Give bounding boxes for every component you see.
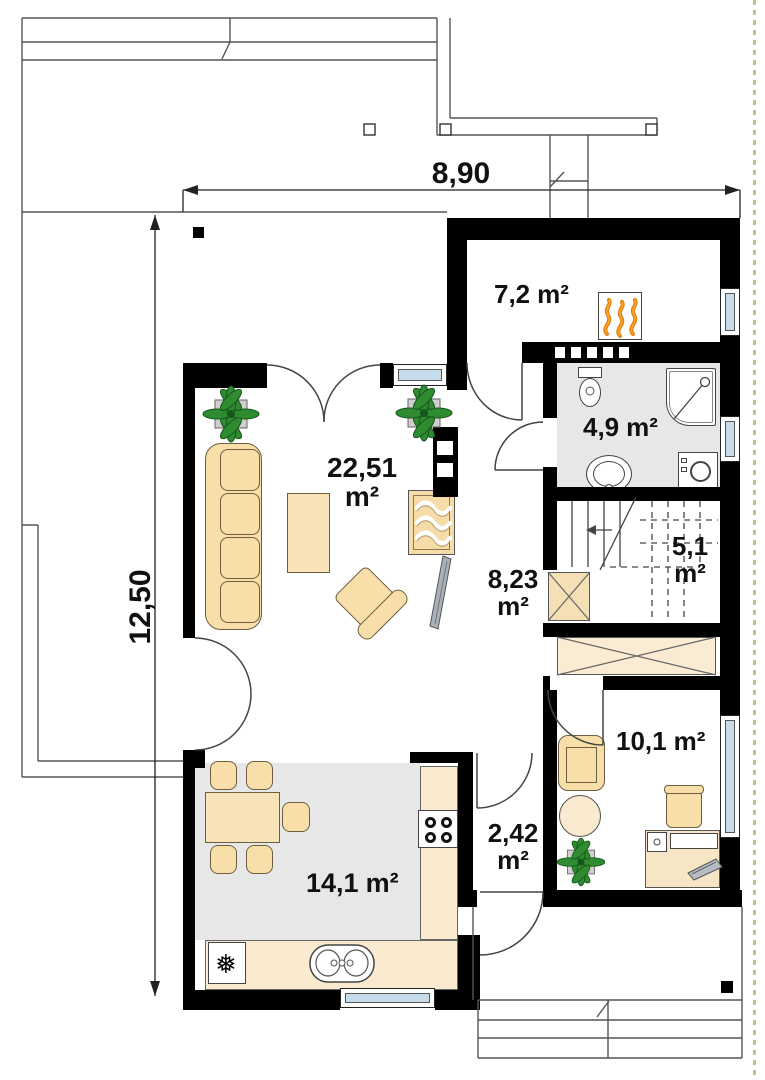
burner-icon — [425, 832, 436, 843]
wall-stairs-left — [543, 501, 557, 570]
wall-kitchen-top — [410, 752, 473, 763]
cooktop — [418, 810, 458, 848]
wall-kitchen-corner — [458, 935, 480, 1010]
room-label-vestibule: 2,42m² — [481, 820, 545, 874]
porch-steps — [473, 907, 742, 1058]
armchair — [323, 555, 411, 643]
chimney-vent — [437, 463, 453, 477]
post — [721, 981, 733, 993]
wall-living-top — [183, 363, 267, 388]
plant-icon — [203, 386, 259, 442]
chimney-block — [433, 427, 458, 497]
room-label-utility: 7,2m² — [494, 281, 569, 308]
wall-right — [720, 336, 740, 416]
wall-vestibule-right — [543, 690, 557, 890]
toilet-tank — [578, 367, 602, 378]
office-chair — [666, 790, 702, 828]
wall-kitchen-left — [183, 750, 195, 1010]
wall-living-top — [380, 363, 393, 388]
hatch-gap — [571, 347, 581, 358]
hatch-gap — [603, 347, 613, 358]
plot-boundary-dashed-line — [753, 0, 756, 1080]
plant-icon — [557, 838, 605, 886]
hatch-gap — [587, 347, 597, 358]
burner-icon — [441, 817, 452, 828]
freezer: ❅ — [208, 942, 246, 984]
hatch-gap — [619, 347, 629, 358]
window-utility — [720, 288, 740, 336]
keyboard — [670, 833, 718, 849]
post — [193, 227, 204, 238]
wall-office-top — [603, 676, 740, 690]
wall-bath-bottom — [543, 487, 720, 501]
wardrobe — [557, 637, 716, 675]
shaft-box — [548, 572, 590, 621]
wall-living-left — [183, 363, 195, 638]
wall-vestibule-bottom — [458, 890, 477, 907]
shower-inner — [669, 371, 713, 423]
wall-under-stairs — [543, 623, 740, 637]
snowflake-icon: ❅ — [215, 951, 237, 977]
toilet-bowl — [579, 378, 601, 407]
chimney-vent — [437, 441, 453, 455]
pouf — [559, 795, 601, 837]
window-bathroom — [720, 416, 740, 462]
sofa-cushion — [220, 493, 260, 535]
room-label-hall: 8,23m² — [481, 566, 545, 620]
floor-plan: ❅ — [0, 0, 765, 1080]
room-label-staircase: 5,1m² — [662, 533, 718, 587]
wall-utility-bottom — [522, 342, 548, 363]
wall-utility-bottom — [640, 342, 720, 363]
room-label-bathroom: 4,9m² — [583, 414, 658, 441]
wall-kitchen-right — [458, 752, 473, 890]
burner-icon — [425, 817, 436, 828]
wall-bottom-right — [543, 890, 742, 907]
sofa-cushion — [220, 537, 260, 579]
dining-chair — [246, 761, 273, 790]
dining-chair — [282, 802, 310, 832]
wall-bath-left — [543, 363, 557, 418]
washer-knob — [681, 458, 687, 463]
sofa-cushion — [220, 449, 260, 491]
dimension-height: 12,50 — [124, 557, 158, 657]
room-label-living: 22,51m² — [320, 453, 404, 511]
washer-knob — [681, 467, 687, 472]
dining-chair — [210, 761, 237, 790]
kitchen-counter-right — [420, 766, 458, 940]
fireplace-inner — [413, 495, 450, 550]
dining-table — [205, 792, 280, 843]
desk-lamp — [647, 832, 667, 852]
wall-right — [720, 218, 740, 288]
room-label-kitchen: 14,1m² — [306, 869, 399, 897]
washer-drum — [690, 461, 711, 482]
wall-utility-left — [447, 218, 467, 390]
window-office — [720, 715, 740, 838]
sofa-cushion — [220, 581, 260, 623]
window-kitchen — [340, 988, 435, 1008]
furnace — [598, 292, 642, 340]
room-label-office: 10,1m² — [616, 728, 705, 755]
wall-kitchen-bottom — [183, 990, 340, 1010]
dining-chair — [210, 845, 237, 874]
office-armchair-seat — [566, 747, 597, 783]
wall-office-top — [543, 676, 550, 690]
window-living — [393, 364, 447, 386]
hatch-gap — [555, 347, 565, 358]
office-chair-back — [664, 785, 704, 794]
tv-icon — [430, 556, 451, 629]
burner-icon — [441, 832, 452, 843]
dimension-width: 8,90 — [408, 157, 514, 191]
dining-chair — [246, 845, 273, 874]
wall-top — [447, 218, 740, 240]
